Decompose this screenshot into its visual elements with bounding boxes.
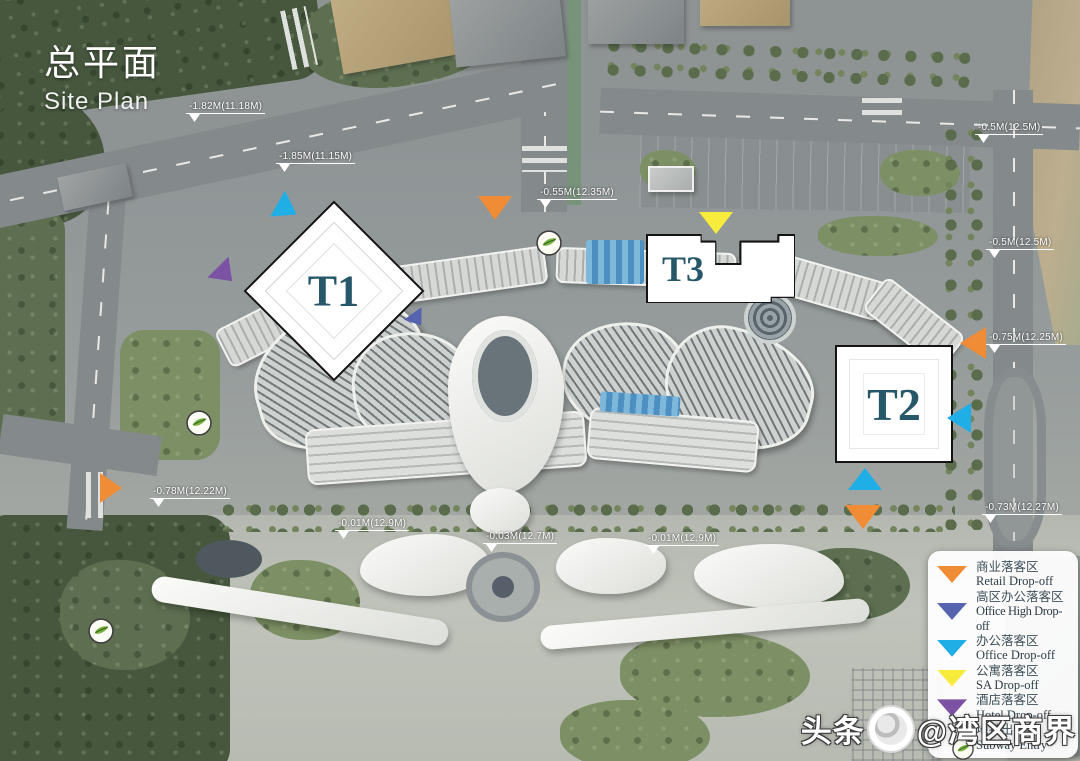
triangle-down-icon bbox=[937, 566, 967, 583]
watermark-handle: @湾区商界 bbox=[917, 706, 1076, 751]
street-trees bbox=[215, 498, 955, 532]
trees-area bbox=[0, 210, 65, 440]
atrium-skylight bbox=[472, 330, 538, 422]
context-building bbox=[588, 0, 684, 44]
crosswalk bbox=[862, 98, 902, 122]
tower-t1-label: T1 bbox=[308, 265, 359, 316]
pond bbox=[196, 540, 262, 578]
page-title: 总平面 Site Plan bbox=[44, 34, 161, 116]
road-median bbox=[567, 0, 581, 205]
legend-label-zh: 商业落客区 bbox=[976, 560, 1053, 574]
mall-entry-plaza bbox=[470, 488, 530, 534]
title-english: Site Plan bbox=[44, 88, 161, 116]
watermark-logo-icon bbox=[869, 707, 913, 751]
fountain-center bbox=[492, 576, 514, 598]
tower-t3-label: T3 bbox=[662, 248, 704, 290]
legend-label-en: SA Drop-off bbox=[976, 678, 1039, 692]
context-building bbox=[648, 166, 694, 192]
elevation-label: -0.5M(12.5M) bbox=[975, 122, 1043, 135]
legend-item-retail: 商业落客区 Retail Drop-off bbox=[936, 560, 1070, 589]
elevation-label: -0.78M(12.22M) bbox=[150, 486, 230, 499]
triangle-down-icon bbox=[937, 640, 967, 657]
triangle-down-icon bbox=[937, 603, 967, 620]
legend-label-zh: 高区办公落客区 bbox=[976, 590, 1070, 604]
water-feature bbox=[586, 240, 644, 284]
legend-label-zh: 办公落客区 bbox=[976, 634, 1055, 648]
subway-entry-icon bbox=[186, 410, 212, 436]
crosswalk bbox=[522, 146, 567, 172]
context-building bbox=[700, 0, 790, 26]
legend-item-office-high: 高区办公落客区 Office High Drop-off bbox=[936, 590, 1070, 633]
subway-entry-icon bbox=[88, 618, 114, 644]
elevation-label: -0.5M(12.5M) bbox=[986, 237, 1054, 250]
watermark-prefix: 头条 bbox=[801, 706, 865, 751]
elevation-label: -0.55M(12.35M) bbox=[537, 187, 617, 200]
context-building bbox=[448, 0, 566, 68]
title-chinese: 总平面 bbox=[44, 34, 161, 86]
legend-label-en: Office High Drop-off bbox=[976, 604, 1070, 633]
legend-label-en: Retail Drop-off bbox=[976, 574, 1053, 588]
tower-t3: T3 bbox=[648, 236, 794, 302]
elevation-label: -0.01M(12.9M) bbox=[335, 518, 409, 531]
legend-label-zh: 公寓落客区 bbox=[976, 664, 1039, 678]
parking-loop bbox=[984, 368, 1046, 550]
elevation-label: -0.73M(12.27M) bbox=[982, 502, 1062, 515]
subway-entry-icon bbox=[536, 230, 562, 256]
site-plan-rendering: T1 T3 T2 -1.82M(11.18M) -1.85M(11.15M) -… bbox=[0, 0, 1080, 761]
tower-t2: T2 bbox=[835, 345, 953, 463]
legend-label-en: Office Drop-off bbox=[976, 648, 1055, 662]
triangle-down-icon bbox=[937, 670, 967, 687]
legend-item-sa: 公寓落客区 SA Drop-off bbox=[936, 664, 1070, 693]
elevation-label: -1.85M(11.15M) bbox=[276, 151, 355, 164]
elevation-label: -0.03M(12.7M) bbox=[483, 531, 557, 544]
trees-area bbox=[818, 216, 938, 256]
elevation-label: -0.01M(12.9M) bbox=[645, 533, 719, 546]
elevation-label: -0.75M(12.25M) bbox=[986, 332, 1066, 345]
legend-item-office: 办公落客区 Office Drop-off bbox=[936, 634, 1070, 663]
watermark: 头条 @湾区商界 bbox=[801, 706, 1076, 751]
elevation-label: -1.82M(11.18M) bbox=[186, 101, 265, 114]
tower-t2-label: T2 bbox=[867, 378, 921, 431]
